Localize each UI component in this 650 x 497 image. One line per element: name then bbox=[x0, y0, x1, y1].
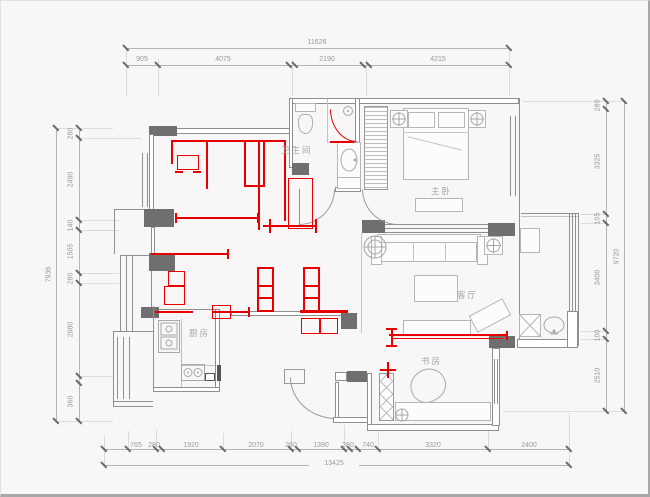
dimension-line-left-total bbox=[56, 128, 57, 421]
red-markup-line bbox=[257, 297, 274, 299]
ceiling-lamp-icon bbox=[486, 238, 501, 253]
study-cabinet bbox=[379, 373, 394, 421]
wall bbox=[289, 98, 293, 168]
floor-plan-canvas: 11626 905 4075 2190 4215 765 280 1920 20… bbox=[0, 0, 650, 497]
toilet-tank bbox=[295, 103, 316, 112]
dim-right-total: 9720 bbox=[614, 239, 623, 275]
window bbox=[510, 116, 511, 196]
dim-left-total: 7936 bbox=[46, 257, 55, 293]
red-markup-box bbox=[164, 286, 185, 305]
desk bbox=[395, 402, 491, 421]
dim-left-seg: 280 bbox=[68, 116, 77, 152]
red-markup-tick bbox=[175, 213, 177, 223]
toilet-bowl bbox=[298, 114, 313, 134]
dim-left-seg: 360 bbox=[68, 384, 77, 420]
red-markup-line bbox=[244, 140, 246, 187]
extension-line bbox=[569, 413, 570, 465]
window bbox=[120, 256, 121, 331]
red-markup-line bbox=[272, 267, 274, 312]
dim-bottom-seg: 1920 bbox=[169, 442, 213, 450]
red-markup-line bbox=[380, 369, 396, 371]
column bbox=[362, 220, 385, 233]
wall bbox=[153, 387, 220, 392]
dim-bottom-total: 13425 bbox=[309, 460, 359, 468]
dim-top-seg: 4215 bbox=[413, 56, 463, 64]
window bbox=[578, 213, 579, 346]
dim-left-seg: 280 bbox=[68, 261, 77, 297]
wall-line bbox=[113, 331, 153, 332]
dim-right-seg: 280 bbox=[595, 88, 604, 124]
red-markup-line bbox=[171, 140, 285, 142]
red-markup-line bbox=[318, 267, 320, 312]
stove-icon bbox=[181, 364, 205, 381]
wardrobe bbox=[364, 106, 388, 190]
sofa-seat bbox=[381, 242, 477, 262]
extension-line bbox=[79, 220, 119, 221]
window bbox=[132, 256, 133, 331]
dim-top-seg: 2190 bbox=[304, 56, 350, 64]
extension-line bbox=[79, 283, 119, 284]
window bbox=[117, 337, 118, 399]
wall-line bbox=[114, 209, 115, 254]
dim-left-seg: 2980 bbox=[68, 312, 77, 348]
extension-line bbox=[79, 138, 141, 139]
column bbox=[149, 253, 175, 271]
window bbox=[494, 359, 495, 404]
red-markup-line bbox=[303, 297, 320, 299]
red-markup-line bbox=[171, 140, 173, 164]
kitchen-sink-icon bbox=[158, 320, 180, 353]
dim-top-seg: 4075 bbox=[200, 56, 246, 64]
red-markup-line bbox=[303, 285, 320, 287]
red-markup-tick bbox=[386, 328, 397, 330]
red-markup-tick bbox=[506, 331, 508, 340]
shower-enclosure bbox=[327, 99, 328, 143]
wall bbox=[333, 417, 371, 423]
fridge bbox=[205, 373, 215, 381]
balcony-cabinet bbox=[520, 228, 540, 253]
dimension-line-top-segments bbox=[126, 65, 509, 66]
red-markup-line bbox=[389, 334, 508, 336]
dimension-line-right-segments bbox=[606, 101, 607, 411]
dim-bottom-seg: 3320 bbox=[411, 442, 455, 450]
window bbox=[515, 116, 516, 196]
window bbox=[142, 153, 143, 207]
room-label-bathroom: 卫生间 bbox=[281, 144, 313, 156]
red-markup-line bbox=[263, 140, 265, 187]
red-markup-line bbox=[175, 171, 183, 173]
red-markup-tick bbox=[269, 219, 271, 233]
red-markup-line-thick bbox=[300, 310, 348, 313]
dimension-line-right-total bbox=[624, 101, 625, 411]
wall-line bbox=[153, 306, 154, 391]
dim-bottom-seg: 2400 bbox=[507, 442, 551, 450]
extension-line bbox=[56, 128, 113, 129]
dim-right-seg: 3325 bbox=[595, 144, 604, 180]
wall-line bbox=[114, 209, 144, 210]
wall bbox=[149, 134, 154, 212]
room-boundary bbox=[361, 233, 362, 333]
sliding-door bbox=[384, 232, 488, 233]
dim-left-seg: 2490 bbox=[68, 162, 77, 198]
red-markup-tick bbox=[227, 249, 229, 259]
fridge bbox=[217, 365, 221, 381]
extension-line bbox=[56, 421, 113, 422]
red-markup-box bbox=[288, 178, 313, 229]
wall-line bbox=[159, 309, 215, 310]
sliding-door bbox=[384, 228, 488, 229]
ceiling-lamp-icon bbox=[392, 112, 406, 126]
wall bbox=[517, 339, 573, 348]
red-markup-line bbox=[257, 267, 259, 312]
coffee-table bbox=[414, 275, 458, 302]
wall bbox=[289, 98, 519, 104]
ceiling-lamp-icon bbox=[470, 112, 484, 126]
stool-icon bbox=[395, 408, 409, 422]
red-markup-line bbox=[212, 311, 250, 313]
dim-bottom-seg: 2070 bbox=[234, 442, 278, 450]
red-markup-line bbox=[155, 311, 193, 313]
red-markup-line bbox=[257, 310, 274, 312]
wall-line bbox=[151, 271, 152, 309]
extension-line bbox=[488, 431, 489, 449]
extension-line bbox=[223, 433, 224, 449]
red-markup-line bbox=[393, 338, 503, 339]
wall bbox=[151, 227, 155, 255]
balcony-basin-icon bbox=[542, 316, 566, 336]
red-markup-line bbox=[244, 185, 265, 187]
window bbox=[113, 401, 153, 402]
room-label-kitchen: 厨房 bbox=[189, 327, 210, 339]
dim-right-seg: 100 bbox=[595, 318, 604, 354]
red-shower-arc bbox=[330, 109, 357, 142]
window bbox=[497, 359, 498, 404]
window bbox=[113, 406, 153, 407]
tv bbox=[469, 298, 511, 333]
column bbox=[341, 313, 357, 329]
wall bbox=[567, 311, 578, 348]
bed-bench bbox=[415, 198, 463, 212]
red-markup-line bbox=[258, 140, 260, 230]
bathroom-cabinet bbox=[337, 177, 361, 189]
column bbox=[488, 223, 515, 236]
dim-bottom-seg: 280 bbox=[140, 442, 168, 450]
red-markup-line bbox=[263, 225, 317, 227]
extension-line bbox=[509, 48, 510, 96]
red-markup-line bbox=[193, 171, 201, 173]
red-markup-line bbox=[303, 267, 305, 312]
red-markup-line bbox=[330, 141, 354, 143]
sliding-door bbox=[384, 224, 488, 225]
extension-line bbox=[79, 376, 113, 377]
red-markup-tick bbox=[386, 345, 397, 347]
ceiling-lamp-icon bbox=[363, 235, 387, 259]
sofa-cushion-line bbox=[413, 242, 414, 262]
wall-line bbox=[113, 331, 114, 406]
dim-bottom-seg: 740 bbox=[354, 442, 382, 450]
column bbox=[347, 371, 367, 382]
column bbox=[292, 163, 309, 175]
window bbox=[126, 256, 127, 331]
window bbox=[129, 337, 130, 399]
red-markup-line bbox=[177, 217, 259, 219]
red-markup-tick bbox=[248, 307, 250, 317]
red-markup-line bbox=[319, 318, 321, 334]
wall-line bbox=[120, 255, 149, 256]
entry-door-arc bbox=[290, 377, 336, 419]
wall-line bbox=[519, 98, 520, 223]
red-markup-line bbox=[206, 140, 208, 189]
dimension-line-top-total bbox=[126, 48, 509, 49]
dim-right-seg: 2510 bbox=[595, 358, 604, 394]
red-markup-box bbox=[177, 155, 199, 170]
wall bbox=[367, 424, 499, 431]
red-markup-line bbox=[303, 267, 320, 269]
dim-top-seg: 905 bbox=[124, 56, 160, 64]
red-markup-box bbox=[168, 271, 185, 286]
dim-right-seg: 105 bbox=[595, 201, 604, 237]
room-label-living-room: 客厅 bbox=[457, 289, 478, 301]
extension-line bbox=[79, 273, 119, 274]
dim-top-total: 11626 bbox=[287, 39, 347, 47]
washing-machine-x-icon bbox=[519, 314, 541, 337]
window bbox=[147, 153, 148, 207]
wall bbox=[367, 373, 372, 425]
room-label-study: 书房 bbox=[421, 355, 442, 367]
red-markup-line bbox=[151, 253, 229, 255]
sofa-cushion-line bbox=[445, 242, 446, 262]
bed-line bbox=[403, 132, 469, 133]
bathroom-basin-icon bbox=[339, 147, 359, 173]
window bbox=[123, 337, 124, 399]
red-markup-line bbox=[257, 285, 274, 287]
red-markup-line bbox=[257, 267, 274, 269]
room-label-master-bedroom: 主卧 bbox=[431, 185, 452, 197]
pillow bbox=[408, 112, 435, 128]
column bbox=[144, 209, 174, 227]
pillow bbox=[438, 112, 465, 128]
wall bbox=[335, 382, 339, 418]
entry-door-leaf bbox=[335, 372, 347, 381]
extension-line bbox=[79, 230, 119, 231]
dim-right-seg: 3400 bbox=[595, 260, 604, 296]
red-markup-tick bbox=[315, 219, 317, 233]
